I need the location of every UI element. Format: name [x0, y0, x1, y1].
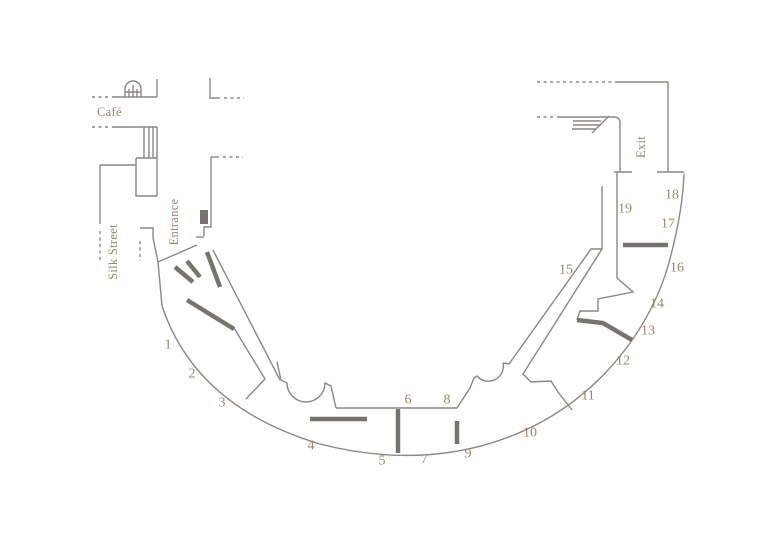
section-number-13: 13 — [641, 324, 655, 339]
section-number-16: 16 — [670, 261, 684, 276]
cafe-left-wall — [100, 165, 136, 224]
inner-wall-left-diagonal — [213, 250, 280, 380]
labels: Café Silk Street Entrance Exit — [97, 105, 648, 280]
section-number-11: 11 — [581, 389, 594, 404]
floor-plan-svg: Café Silk Street Entrance Exit 123456789… — [0, 0, 768, 538]
section-number-4: 4 — [308, 439, 315, 454]
gallery-floor-plan: Café Silk Street Entrance Exit 123456789… — [0, 0, 768, 538]
section-number-15: 15 — [559, 263, 573, 278]
pier-wall-right — [503, 249, 602, 410]
arch-door-icon — [125, 81, 141, 97]
section-number-10: 10 — [523, 426, 537, 441]
section-number-1: 1 — [165, 338, 172, 353]
label-entrance: Entrance — [167, 198, 181, 245]
section-number-18: 18 — [665, 188, 679, 203]
niche-wall-left — [277, 362, 336, 408]
outer-arc-wall — [162, 174, 684, 455]
section-number-2: 2 — [189, 367, 196, 382]
corner-wall-upper-mid — [210, 78, 220, 98]
section-number-12: 12 — [616, 354, 630, 369]
artwork-partitions — [175, 210, 668, 453]
section-number-5: 5 — [379, 454, 386, 469]
stairs-icon-exit — [572, 116, 609, 133]
entrance-corridor-wall — [204, 157, 211, 236]
label-silk-street: Silk Street — [106, 224, 120, 280]
baffle-wall-section-3 — [234, 328, 265, 399]
walls — [92, 78, 684, 455]
partition-2 — [187, 300, 234, 329]
label-cafe: Café — [97, 105, 122, 119]
section-number-19: 19 — [618, 202, 632, 217]
entrance-door-marker — [200, 210, 208, 224]
section-number-3: 3 — [219, 396, 226, 411]
label-exit: Exit — [634, 136, 648, 158]
stairs-icon-cafe — [144, 127, 157, 158]
partition-1a — [175, 267, 193, 282]
niche-wall-right — [457, 363, 503, 408]
section-number-9: 9 — [465, 447, 472, 462]
section-numbers: 12345678910111213141516171819 — [165, 188, 685, 469]
partition-1b — [187, 261, 200, 277]
silk-street-wall-stub — [140, 228, 153, 238]
section-number-17: 17 — [661, 217, 675, 232]
gallery-left-top-wall — [158, 245, 197, 262]
end-room-bottom-wall — [577, 278, 633, 320]
gallery-left-end-wall — [153, 238, 162, 306]
stair-shaft — [136, 158, 157, 196]
section-number-8: 8 — [444, 393, 451, 408]
section-number-6: 6 — [405, 393, 412, 408]
partition-13 — [577, 320, 632, 340]
section-number-14: 14 — [650, 297, 664, 312]
section-number-7: 7 — [421, 453, 428, 468]
partition-1c — [207, 252, 220, 287]
